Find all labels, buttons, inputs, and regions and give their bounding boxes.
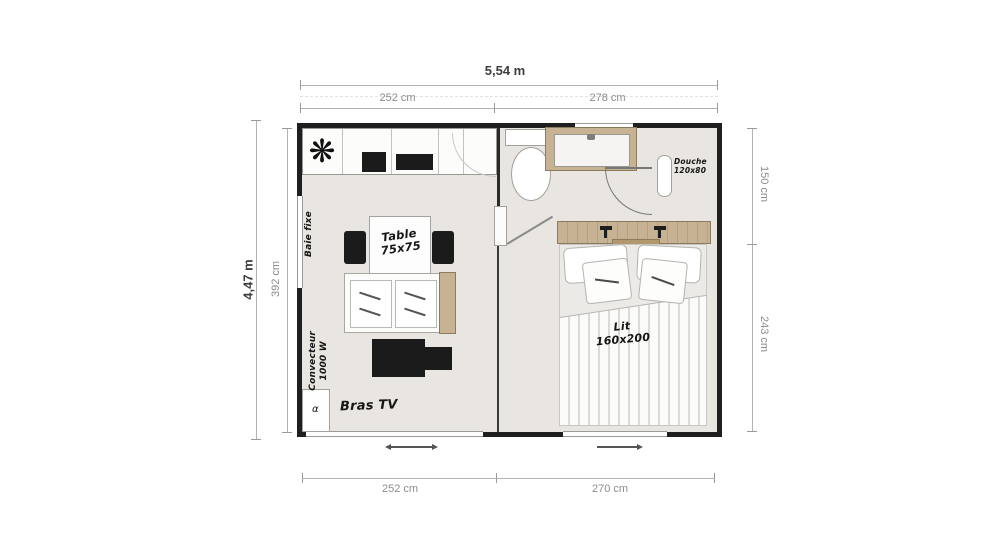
sofa-cushion (350, 280, 392, 328)
dim-line-left-total (256, 120, 257, 440)
shower-label: Douche 120x80 (674, 157, 720, 175)
tick (282, 432, 292, 433)
dining-table: Table 75x75 (369, 216, 431, 278)
partition-wall-lower (497, 244, 499, 432)
tick (251, 439, 261, 440)
counter-divider (391, 129, 392, 174)
dim-bottom-left: 252 cm (335, 483, 465, 495)
sofa (344, 273, 440, 333)
faucet (587, 134, 595, 140)
tick (747, 244, 757, 245)
dim-left-total: 4,47 m (241, 225, 256, 335)
dim-top-left: 252 cm (330, 92, 465, 104)
dim-right-bottom: 243 cm (758, 280, 770, 388)
pillow-small-right (638, 258, 688, 305)
dim-line-left-inner (287, 128, 288, 433)
tick (747, 128, 757, 129)
tv-arm-label: Bras TV (340, 397, 420, 415)
hob-fan-icon: ❋ (303, 131, 341, 171)
counter-divider (438, 129, 439, 174)
pillow-small-left (582, 257, 633, 304)
kitchen-appliance-block-wide (396, 154, 433, 170)
chair-right (432, 231, 454, 264)
shower-tray (657, 155, 672, 197)
headboard-bracket-stem (604, 226, 607, 238)
counter-divider (342, 129, 343, 174)
headboard-bracket-stem (658, 226, 661, 238)
dim-top-total: 5,54 m (420, 63, 590, 78)
sofa-cushion (395, 280, 437, 328)
tick (251, 120, 261, 121)
tick (747, 431, 757, 432)
fixed-window-label: Baie fixe (304, 186, 314, 282)
tick (496, 473, 497, 483)
chair-left (344, 231, 366, 264)
dim-line-bottom (302, 478, 715, 479)
dim-right-top: 150 cm (758, 130, 770, 238)
kitchen-appliance-block (362, 152, 386, 172)
dim-top-right: 278 cm (530, 92, 685, 104)
tv-unit (372, 339, 425, 377)
tick (300, 80, 301, 90)
tick (717, 80, 718, 90)
interior-door-leaf (494, 206, 507, 246)
dim-line-top-total (300, 85, 718, 86)
partition-wall-upper (497, 128, 500, 208)
tick (494, 103, 495, 113)
sliding-bay-window-left (306, 431, 483, 437)
tv-unit-extension (425, 347, 452, 370)
dim-bottom-right: 270 cm (545, 483, 675, 495)
vanity-counter (545, 127, 637, 171)
heater-label: Convecteur 1000 W (308, 306, 330, 416)
fixed-window-left (297, 196, 303, 288)
dim-left-inner: 392 cm (270, 224, 282, 334)
tick (300, 103, 301, 113)
tick (717, 103, 718, 113)
tick (714, 473, 715, 483)
sliding-window-bedroom (563, 431, 667, 437)
tick (302, 473, 303, 483)
dim-line-right (752, 128, 753, 432)
sofa-armrest (439, 272, 456, 334)
tick (282, 128, 292, 129)
dim-line-top-sub (300, 108, 718, 109)
floorplan-canvas: 5,54 m 252 cm 278 cm 252 cm 270 cm 4,47 … (0, 0, 1000, 560)
table-label: Table 75x75 (372, 226, 427, 259)
